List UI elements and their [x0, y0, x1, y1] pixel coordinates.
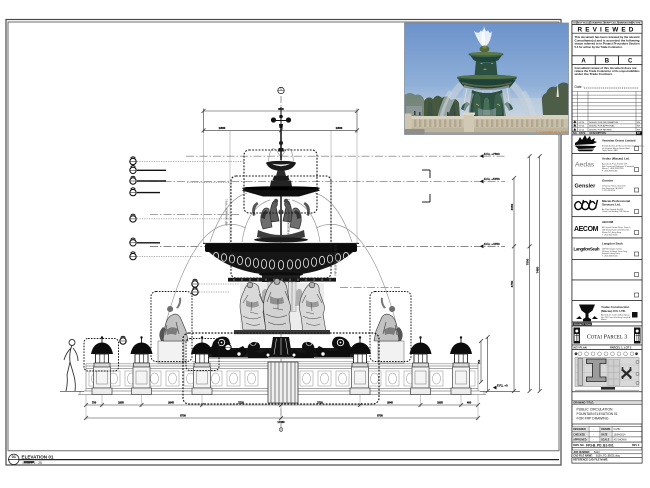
- svg-text:2845: 2845: [387, 401, 393, 405]
- svg-text:FRP BESPOKE ORNAMENT TYPE 2: FRP BESPOKE ORNAMENT TYPE 2: [288, 198, 291, 237]
- svg-text:CAHO: CAHO: [614, 428, 621, 431]
- svg-text:1800: 1800: [336, 126, 343, 130]
- svg-text:F.F.L +7500: F.F.L +7500: [484, 152, 500, 156]
- svg-text:Services Ltd.: Services Ltd.: [602, 202, 621, 206]
- svg-text:4750: 4750: [510, 280, 514, 287]
- svg-text:Aedas: Aedas: [575, 162, 595, 169]
- svg-text:C: C: [628, 59, 633, 65]
- svg-text:1855: 1855: [118, 401, 124, 405]
- svg-text:CHECKED: CHECKED: [573, 433, 585, 436]
- svg-text:8730: 8730: [377, 414, 383, 418]
- svg-text:A: A: [581, 59, 586, 65]
- svg-text:AECOM: AECOM: [574, 226, 599, 233]
- svg-text:7500: 7500: [525, 258, 529, 265]
- svg-text:T +852 3922 9000: T +852 3922 9000: [602, 234, 617, 236]
- svg-text:FRP BESPOKE BASIN EDGE: FRP BESPOKE BASIN EDGE: [335, 244, 338, 275]
- svg-text:Macau: Macau: [601, 319, 607, 321]
- svg-text:750: 750: [92, 401, 97, 405]
- svg-text:FRP ORNAMENT TYPE 1: FRP ORNAMENT TYPE 1: [226, 198, 229, 226]
- svg-text:ISSUED FOR APPROVAL: ISSUED FOR APPROVAL: [589, 125, 615, 128]
- svg-text:SCALE: SCALE: [601, 439, 610, 442]
- svg-text:Gensler: Gensler: [602, 178, 614, 182]
- svg-text:REVIEWED: REVIEWED: [578, 27, 637, 34]
- svg-text:8730: 8730: [180, 414, 186, 418]
- svg-text:7460: 7460: [536, 266, 540, 273]
- svg-text:DRAWING TITLE:: DRAWING TITLE:: [574, 402, 595, 405]
- svg-text:03/14: 03/14: [579, 122, 585, 124]
- svg-text:Aedas (Macau) Ltd.: Aedas (Macau) Ltd.: [602, 156, 630, 160]
- svg-text:F.F.L +5750: F.F.L +5750: [484, 177, 500, 181]
- svg-text:FOR FRP DRAWING: FOR FRP DRAWING: [577, 416, 609, 420]
- svg-text:5.4 for action by the Trade Co: 5.4 for action by the Trade Contractor.: [575, 46, 623, 49]
- svg-text:PUBLIC CIRCULATION: PUBLIC CIRCULATION: [577, 408, 613, 412]
- svg-text:B: B: [605, 59, 610, 65]
- svg-text:17460: 17460: [277, 420, 285, 424]
- svg-text:400: 400: [467, 401, 472, 405]
- svg-text:01: 01: [12, 454, 17, 459]
- svg-text:DATE: DATE: [601, 433, 608, 436]
- svg-text:F.F.L +4750: F.F.L +4750: [484, 242, 500, 246]
- svg-text:3050: 3050: [510, 203, 514, 210]
- svg-text:ELEVATION 01: ELEVATION 01: [22, 455, 54, 460]
- svg-text:DO NOT SCALE DRAWING. VERIFY A: DO NOT SCALE DRAWING. VERIFY ALL DIMENSI…: [574, 22, 642, 25]
- svg-text:750: 750: [477, 359, 481, 364]
- svg-text:1855: 1855: [437, 401, 443, 405]
- svg-text:3720: 3720: [317, 401, 323, 405]
- svg-text:JOB NUMBER:: JOB NUMBER:: [573, 451, 590, 454]
- svg-text:REFERENCE CAD FILE NAME:: REFERENCE CAD FILE NAME:: [573, 459, 608, 462]
- svg-text:T 415.433.3700: T 415.433.3700: [602, 190, 615, 192]
- svg-text:AECOM: AECOM: [602, 220, 614, 224]
- svg-text:DESIGNED: DESIGNED: [573, 428, 586, 431]
- svg-text:Date :: Date :: [575, 85, 584, 89]
- svg-text:PARCEL 1, LOT 2: PARCEL 1, LOT 2: [610, 345, 632, 349]
- svg-text:FP3-B_PD_B1-001: FP3-B_PD_B1-001: [586, 443, 614, 447]
- svg-text:02/14: 02/14: [579, 126, 585, 128]
- svg-text:F.F.L +0: F.F.L +0: [497, 383, 508, 387]
- svg-text:China Law Building 21/F, Macau: China Law Building 21/F, Macau: [602, 211, 629, 213]
- svg-text:F +853 2833 1066: F +853 2833 1066: [602, 171, 617, 173]
- svg-text:3720: 3720: [238, 401, 244, 405]
- svg-text:2845: 2845: [168, 401, 174, 405]
- svg-text:(Macau) CO. LTD.: (Macau) CO. LTD.: [601, 309, 626, 313]
- svg-text:DRAWN: DRAWN: [601, 428, 610, 431]
- svg-text:Langdon Seah: Langdon Seah: [602, 241, 623, 245]
- svg-text:© Copyright tous droits: © Copyright tous droits: [536, 130, 569, 134]
- svg-text:APPROVED: APPROVED: [573, 439, 587, 442]
- svg-text:COTAI PARCEL 3: COTAI PARCEL 3: [587, 334, 628, 341]
- svg-text:FOUNTAIN ELEVATION 01: FOUNTAIN ELEVATION 01: [577, 412, 618, 416]
- svg-text:B15A_FD_B5001.dwg: B15A_FD_B5001.dwg: [596, 455, 620, 458]
- svg-text:KEY PLAN: KEY PLAN: [574, 345, 587, 349]
- svg-text:10/04/2014: 10/04/2014: [614, 433, 627, 436]
- svg-text:DWG NO.: DWG NO.: [573, 444, 585, 447]
- svg-text:B123: B123: [594, 451, 600, 454]
- svg-text:under the Trade Contract.: under the Trade Contract.: [575, 73, 613, 76]
- svg-text:1800: 1800: [219, 126, 226, 130]
- svg-text:Taipa, Macau SAR: Taipa, Macau SAR: [602, 149, 618, 152]
- svg-text:KH: KH: [637, 126, 640, 128]
- svg-text:CAD FILE NAME:: CAD FILE NAME:: [573, 455, 593, 458]
- svg-text:LangdonSeah: LangdonSeah: [574, 246, 600, 251]
- svg-text:AS SHOWN: AS SHOWN: [614, 439, 627, 442]
- svg-text:REV 0: REV 0: [632, 444, 640, 447]
- svg-text:ISSUED FOR INFORMATION: ISSUED FOR INFORMATION: [589, 121, 619, 124]
- svg-text:KH: KH: [637, 122, 640, 124]
- svg-text:Gensler: Gensler: [575, 183, 597, 189]
- svg-text:Venetian Orient Limited: Venetian Orient Limited: [602, 138, 636, 142]
- svg-text:T +852 2830 3500: T +852 2830 3500: [602, 256, 617, 258]
